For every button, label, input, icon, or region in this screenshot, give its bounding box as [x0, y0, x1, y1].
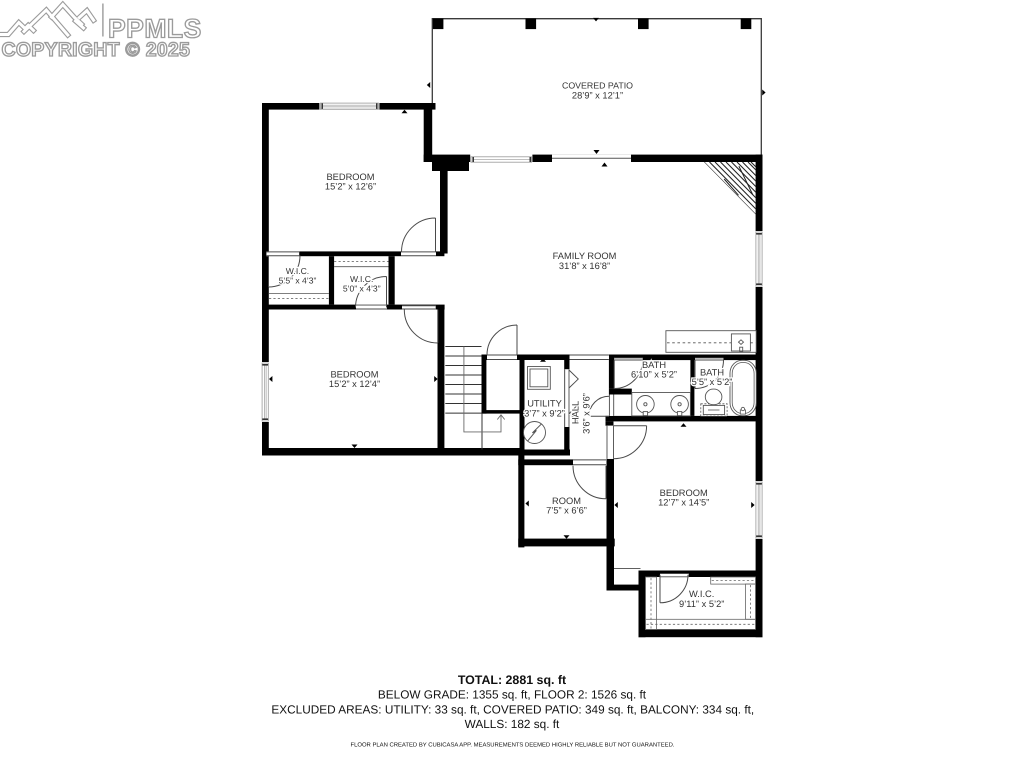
svg-text:5’5” x 5’2”: 5’5” x 5’2” — [692, 377, 733, 387]
svg-text:5’0” x 4’3”: 5’0” x 4’3” — [343, 284, 381, 294]
svg-text:15’2” x 12’4”: 15’2” x 12’4” — [329, 379, 380, 389]
svg-text:BEDROOM: BEDROOM — [330, 370, 378, 380]
svg-text:HALL: HALL — [571, 401, 581, 424]
svg-text:WALLS: 182 sq. ft: WALLS: 182 sq. ft — [465, 717, 560, 731]
svg-text:28’9” x 12’1”: 28’9” x 12’1” — [572, 90, 623, 100]
svg-text:7’5” x 6’6”: 7’5” x 6’6” — [546, 506, 587, 516]
svg-text:FLOOR PLAN CREATED BY CUBICASA: FLOOR PLAN CREATED BY CUBICASA APP. MEAS… — [351, 742, 675, 749]
svg-text:W.I.C.: W.I.C. — [350, 274, 373, 284]
svg-text:31’8” x 16’8”: 31’8” x 16’8” — [559, 261, 610, 271]
svg-text:9’11” x 5’2”: 9’11” x 5’2” — [679, 599, 724, 609]
svg-text:12’7” x 14’5”: 12’7” x 14’5” — [658, 498, 709, 508]
svg-text:5’5” x 4’3”: 5’5” x 4’3” — [279, 276, 317, 286]
svg-text:3’6” x 9’6”: 3’6” x 9’6” — [582, 393, 592, 434]
svg-text:W.I.C.: W.I.C. — [286, 266, 309, 276]
svg-text:ROOM: ROOM — [552, 496, 581, 506]
svg-text:15’2” x 12’6”: 15’2” x 12’6” — [325, 182, 376, 192]
svg-text:W.I.C.: W.I.C. — [689, 589, 714, 599]
svg-text:BEDROOM: BEDROOM — [326, 172, 374, 182]
svg-text:BEDROOM: BEDROOM — [660, 488, 708, 498]
svg-text:BATH: BATH — [642, 360, 666, 370]
svg-text:BATH: BATH — [700, 368, 724, 378]
svg-text:UTILITY: UTILITY — [527, 399, 562, 409]
svg-text:FAMILY ROOM: FAMILY ROOM — [553, 251, 617, 261]
svg-text:TOTAL: 2881 sq. ft: TOTAL: 2881 sq. ft — [458, 673, 566, 687]
svg-text:COPYRIGHT © 2025: COPYRIGHT © 2025 — [2, 39, 191, 61]
svg-text:6’10” x 5’2”: 6’10” x 5’2” — [631, 370, 677, 380]
svg-text:BELOW GRADE: 1355 sq. ft, FLOO: BELOW GRADE: 1355 sq. ft, FLOOR 2: 1526 … — [378, 688, 647, 702]
svg-text:3’7” x 9’2”: 3’7” x 9’2” — [524, 408, 565, 418]
svg-text:COVERED PATIO: COVERED PATIO — [562, 81, 633, 91]
svg-text:EXCLUDED AREAS: UTILITY: 33 sq: EXCLUDED AREAS: UTILITY: 33 sq. ft, COVE… — [271, 702, 754, 716]
